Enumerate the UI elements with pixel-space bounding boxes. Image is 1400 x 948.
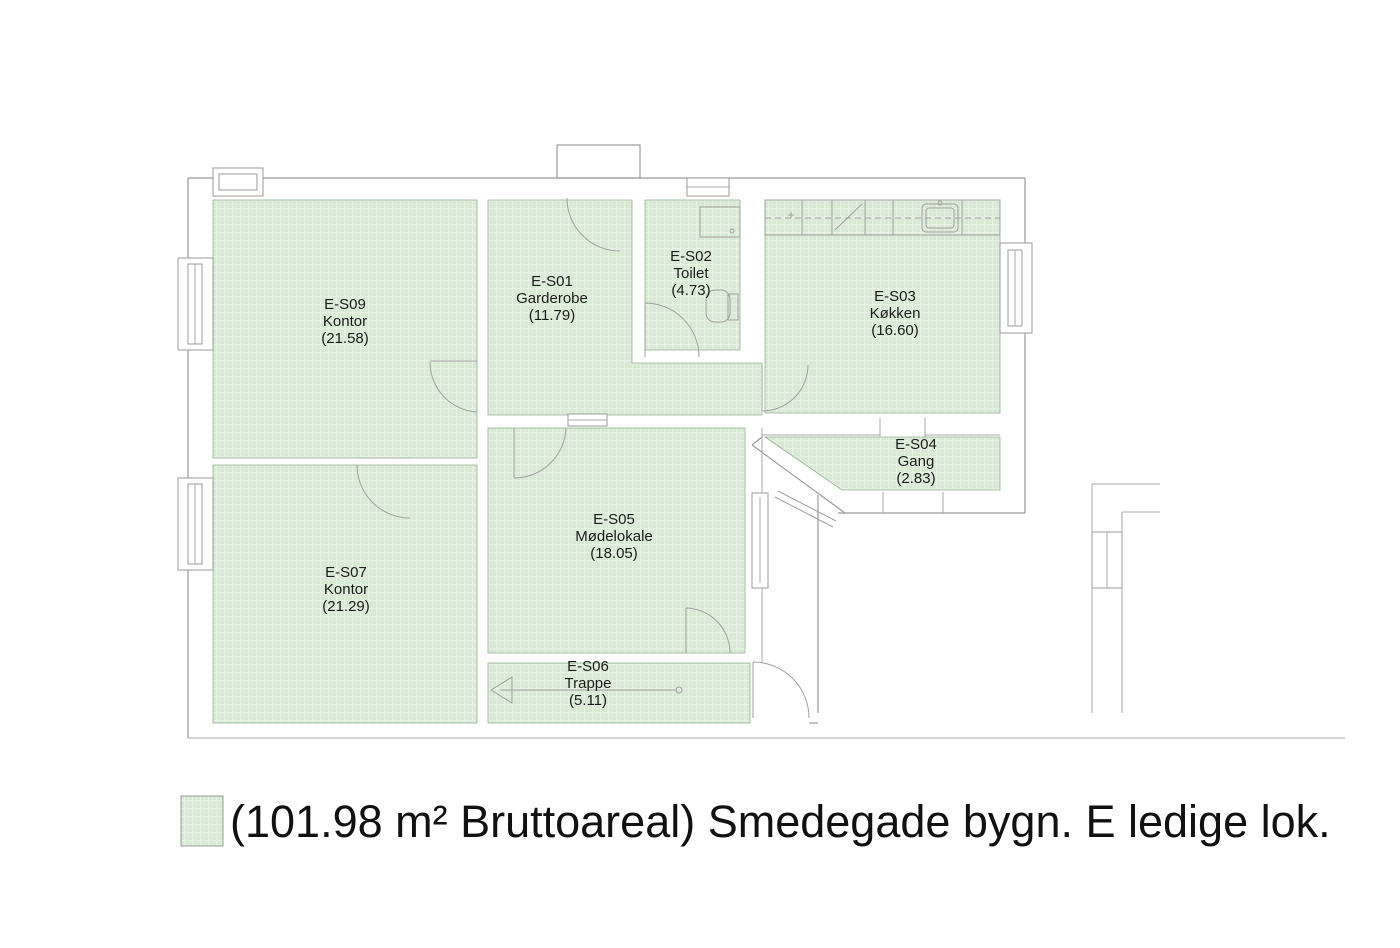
room-area: (21.58)	[321, 330, 369, 347]
room-id: E-S03	[874, 288, 916, 305]
room-id: E-S02	[670, 248, 712, 265]
room-area: (2.83)	[896, 470, 935, 487]
label-room-e-s06: E-S06 Trappe (5.11)	[565, 658, 612, 709]
room-area: (11.79)	[529, 307, 575, 324]
room-e-s06	[488, 663, 750, 723]
floor-plan-drawing: E-S09 Kontor (21.58) E-S01 Garderobe (11…	[0, 0, 1400, 948]
room-area: (5.11)	[569, 692, 607, 709]
room-name: Kontor	[324, 581, 368, 598]
legend-swatch	[181, 796, 223, 846]
floor-plan-page: E-S09 Kontor (21.58) E-S01 Garderobe (11…	[0, 0, 1400, 948]
room-e-s04	[765, 437, 1000, 490]
room-id: E-S05	[593, 511, 635, 528]
legend: (101.98 m² Bruttoareal) Smedegade bygn. …	[181, 796, 1331, 847]
room-name: Kontor	[323, 313, 367, 330]
room-area: (21.29)	[322, 598, 370, 615]
entrance-porch	[557, 145, 640, 178]
legend-label: (101.98 m² Bruttoareal) Smedegade bygn. …	[230, 796, 1331, 847]
room-name: Mødelokale	[575, 528, 653, 545]
room-name: Garderobe	[516, 290, 588, 307]
rooms-layer	[213, 200, 1000, 723]
window-top-left	[213, 168, 263, 196]
door-leaf-gang-diagonal	[775, 491, 836, 527]
window-left-lower	[178, 478, 213, 570]
room-name: Trappe	[565, 675, 612, 692]
window-meeting-room-top	[568, 414, 607, 426]
label-room-e-s04: E-S04 Gang (2.83)	[895, 436, 937, 487]
window-meeting-room-right	[752, 493, 768, 588]
room-id: E-S04	[895, 436, 937, 453]
room-id: E-S06	[567, 658, 609, 675]
neighbor-building-outline	[1092, 484, 1160, 713]
label-room-e-s07: E-S07 Kontor (21.29)	[322, 564, 370, 615]
room-name: Gang	[898, 453, 935, 470]
room-area: (4.73)	[671, 282, 710, 299]
room-area: (18.05)	[590, 545, 638, 562]
window-left-upper	[178, 258, 213, 350]
door-arc-exit	[753, 662, 809, 718]
window-top-toilet	[687, 178, 729, 196]
room-name: Toilet	[673, 265, 709, 282]
room-id: E-S01	[531, 273, 573, 290]
room-area: (16.60)	[871, 322, 919, 339]
label-room-e-s02: E-S02 Toilet (4.73)	[670, 248, 712, 299]
window-kitchen-right	[1000, 243, 1032, 333]
label-room-e-s09: E-S09 Kontor (21.58)	[321, 296, 369, 347]
label-room-e-s03: E-S03 Køkken (16.60)	[870, 288, 921, 339]
room-id: E-S09	[324, 296, 366, 313]
room-name: Køkken	[870, 305, 921, 322]
room-id: E-S07	[325, 564, 367, 581]
